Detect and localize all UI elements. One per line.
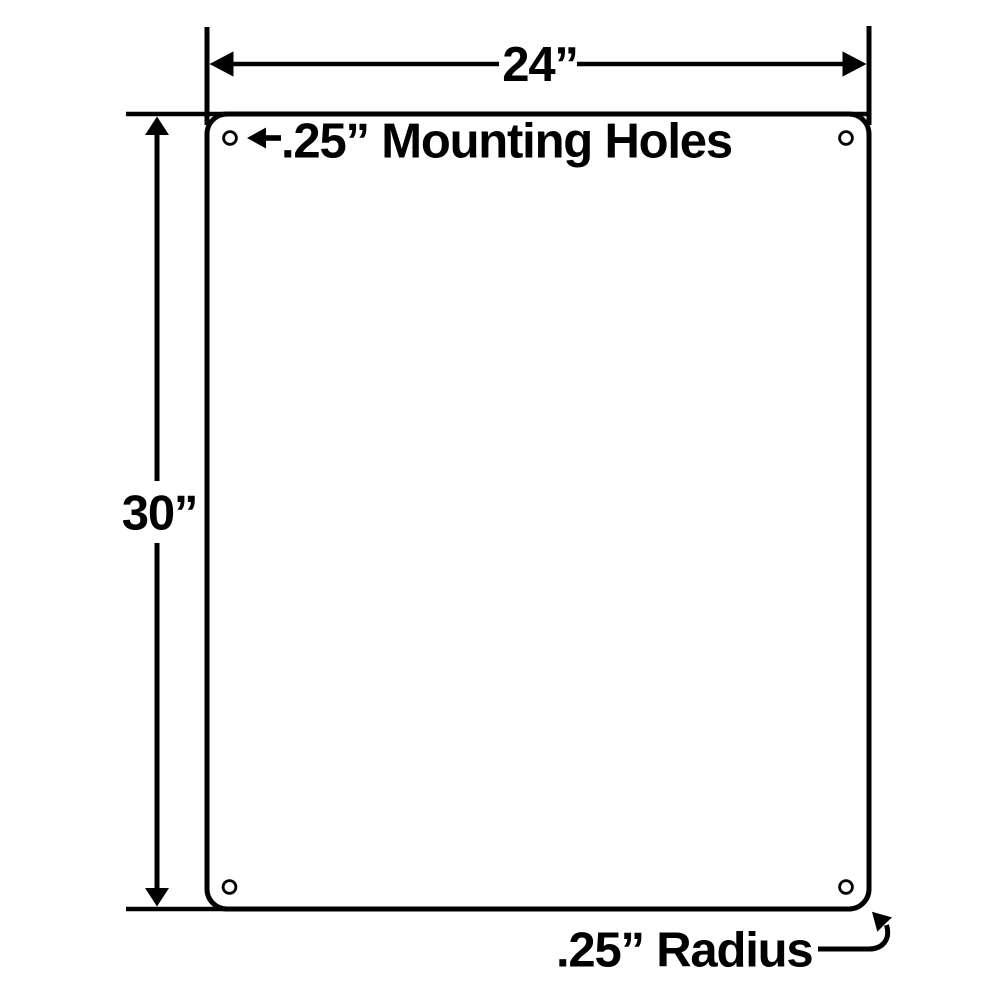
svg-text:24”: 24” [502,38,577,92]
svg-text:30”: 30” [122,487,197,541]
svg-text:.25” Radius: .25” Radius [556,924,812,978]
svg-text:.25” Mounting Holes: .25” Mounting Holes [281,115,732,169]
